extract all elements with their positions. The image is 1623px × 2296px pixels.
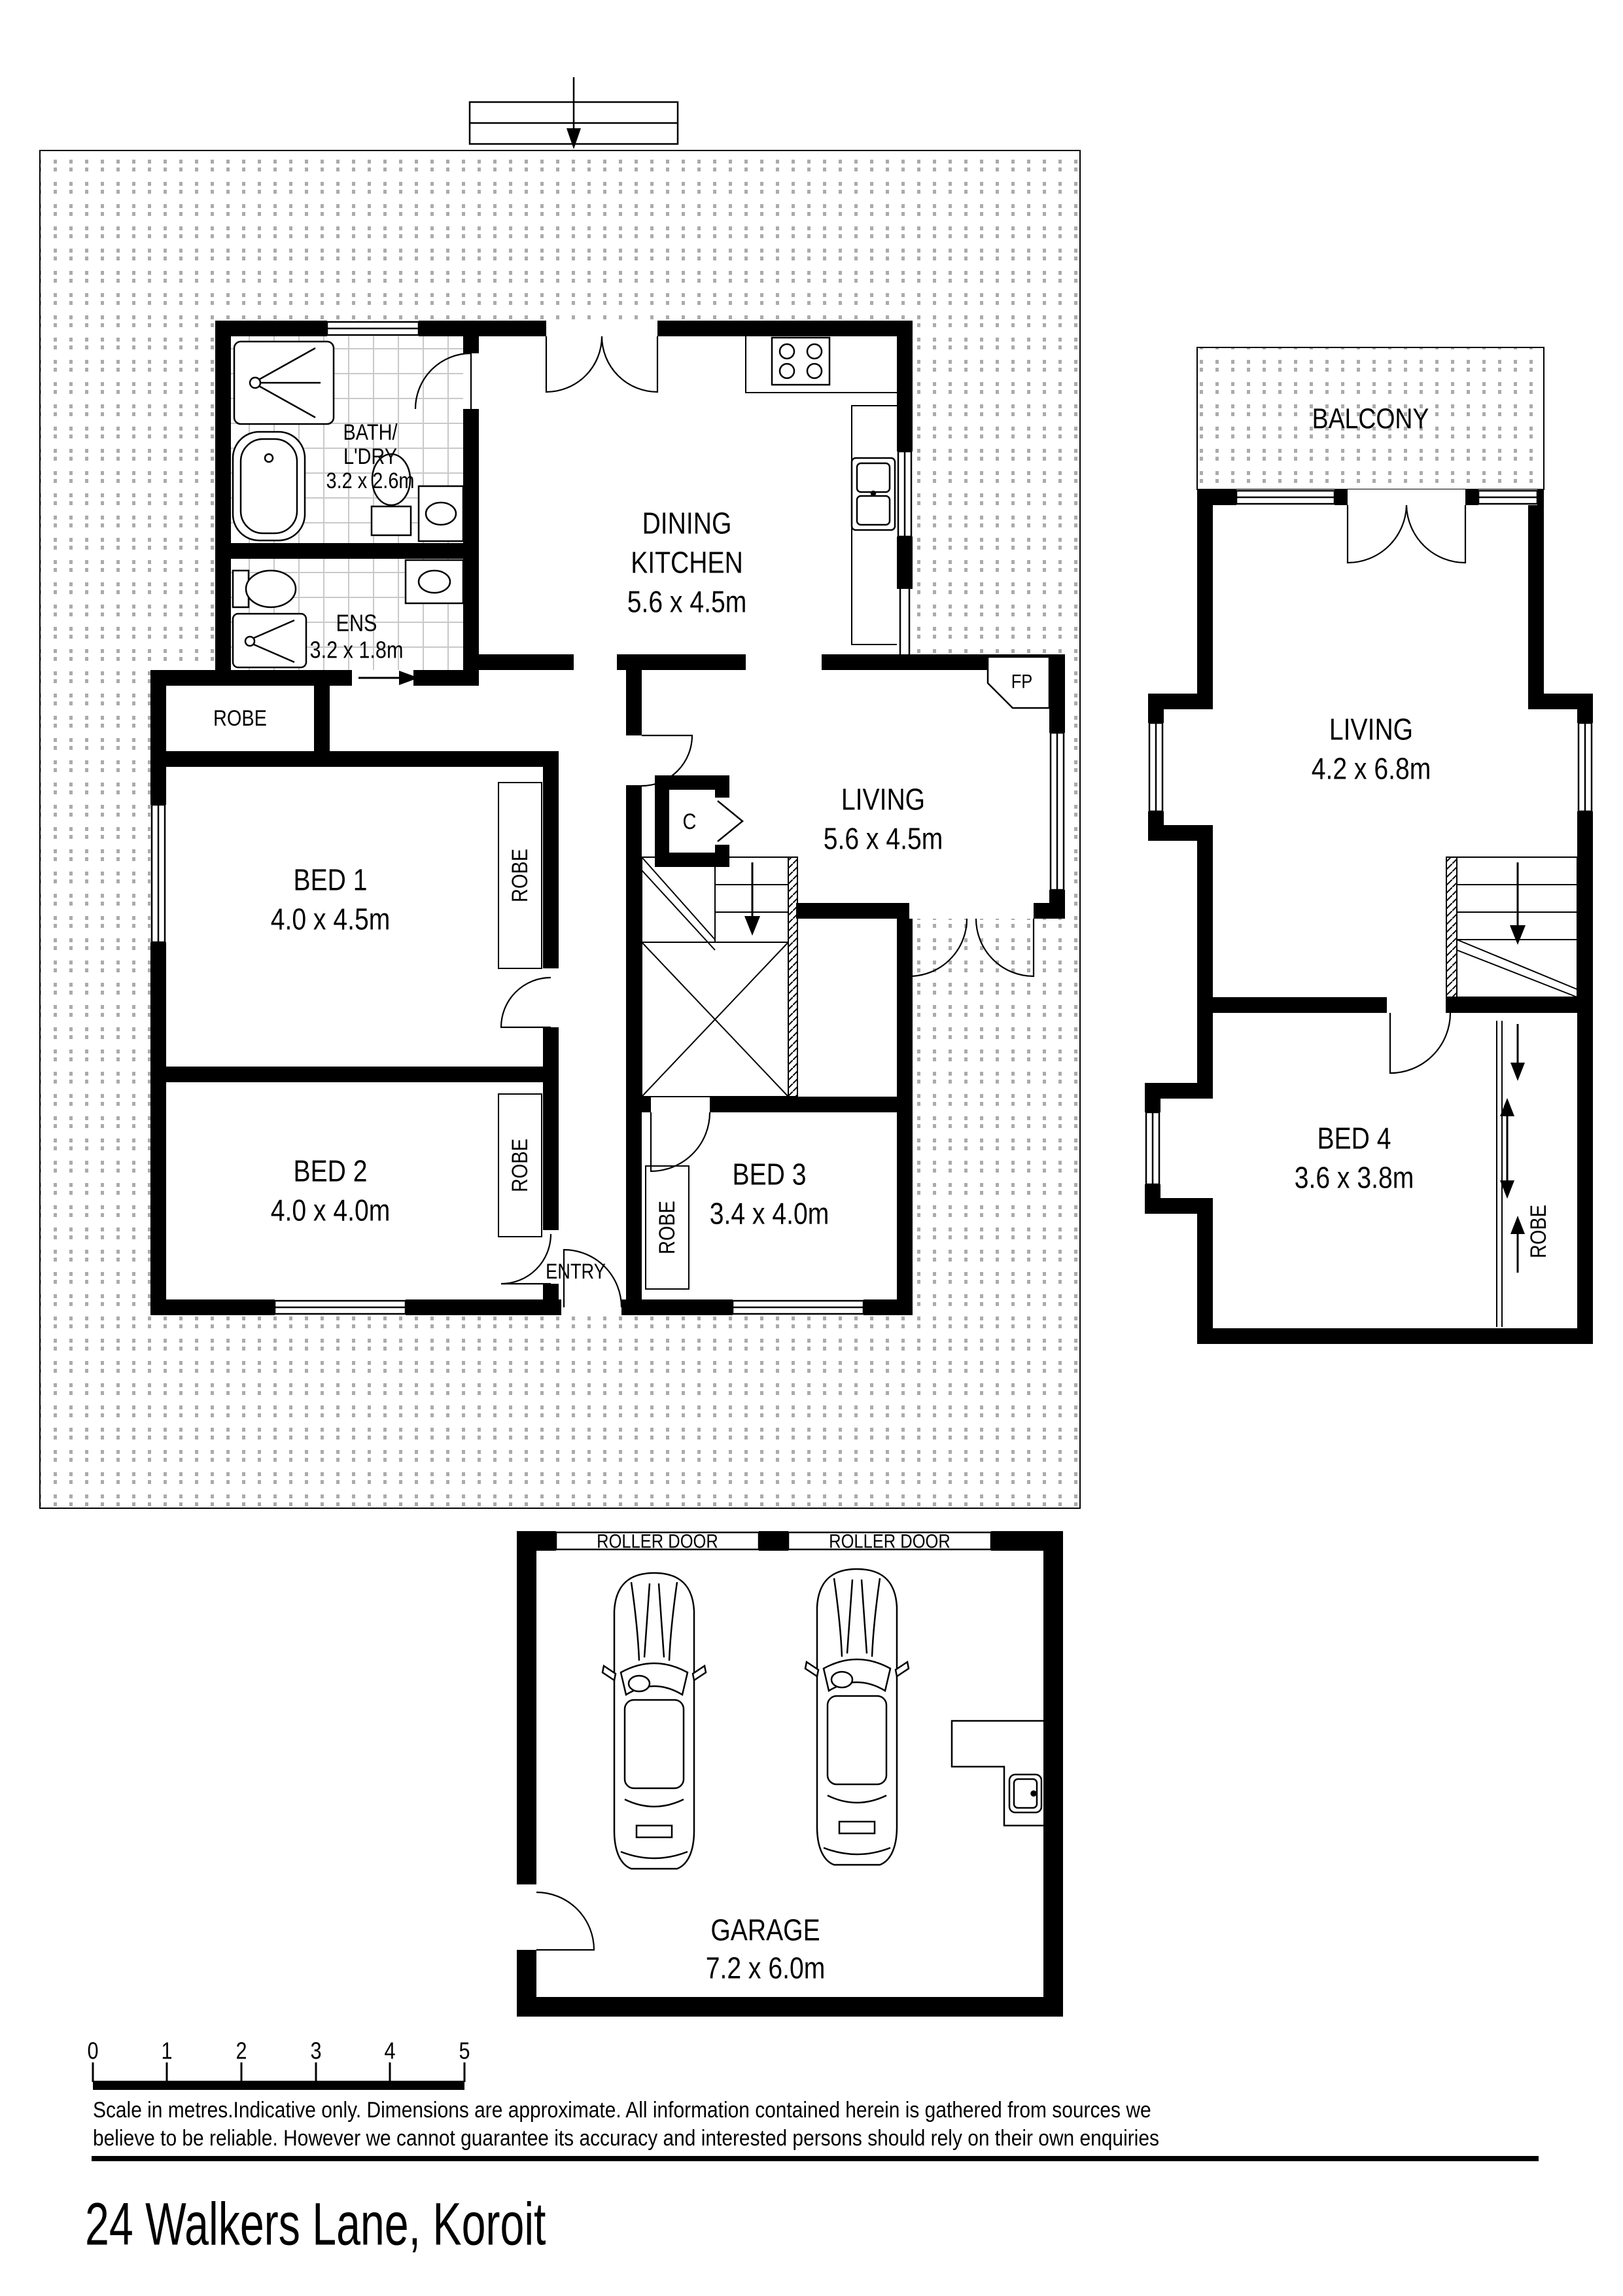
- entry-label: ENTRY: [546, 1258, 606, 1284]
- room-label-living-upper: LIVING: [1329, 711, 1413, 749]
- scale-tick-0: 0: [87, 2036, 98, 2066]
- robe-label-bed1: ROBE: [506, 849, 534, 902]
- ensuite-shower-icon: [233, 614, 306, 667]
- room-label-kitchen: KITCHEN: [631, 544, 743, 582]
- robe-label-bed2: ROBE: [506, 1139, 534, 1192]
- roller-door-label-2: ROLLER DOOR: [829, 1529, 951, 1554]
- page-title: 24 Walkers Lane, Koroit: [85, 2187, 546, 2263]
- bathtub-icon: [233, 432, 305, 540]
- scale-tick-2: 2: [236, 2036, 247, 2066]
- scale-tick-3: 3: [310, 2036, 321, 2066]
- car-icon: [805, 1569, 909, 1865]
- car-icon: [602, 1573, 706, 1869]
- room-dims-garage: 7.2 x 6.0m: [706, 1949, 826, 1987]
- roller-door-label-1: ROLLER DOOR: [597, 1529, 718, 1554]
- robe-label-bed4: ROBE: [1525, 1205, 1553, 1258]
- garage-bench: [952, 1721, 1043, 1826]
- room-dims-living-upper: 4.2 x 6.8m: [1312, 750, 1431, 788]
- ensuite-basin-icon: [406, 560, 463, 603]
- fireplace-label: FP: [1011, 669, 1033, 694]
- room-label-bed1: BED 1: [293, 861, 367, 899]
- vanity-basin-icon: [419, 486, 463, 541]
- robe-label-bed3: ROBE: [654, 1201, 682, 1254]
- room-dims-bath: 3.2 x 2.6m: [326, 467, 415, 495]
- scale-tick-1: 1: [161, 2036, 172, 2066]
- garage-entry-door: [536, 1892, 594, 1950]
- room-dims-living-ground: 5.6 x 4.5m: [824, 820, 943, 858]
- disclaimer-line-2: believe to be reliable. However we canno…: [93, 2125, 1159, 2153]
- room-label-living-ground: LIVING: [841, 781, 925, 819]
- room-dims-dining-kitchen: 5.6 x 4.5m: [627, 583, 747, 621]
- room-label-dining: DINING: [642, 504, 732, 542]
- disclaimer-line-1: Scale in metres.Indicative only. Dimensi…: [93, 2096, 1151, 2125]
- scale-tick-4: 4: [384, 2036, 395, 2066]
- robe-label-hall: ROBE: [213, 705, 267, 733]
- room-label-bed3: BED 3: [732, 1156, 806, 1193]
- floorplan-page: BATH/ L'DRY 3.2 x 2.6m ENS 3.2 x 1.8m DI…: [0, 0, 1623, 2296]
- footer-divider: [92, 2156, 1539, 2161]
- room-dims-bed3: 3.4 x 4.0m: [710, 1195, 829, 1233]
- porch-steps: [470, 77, 678, 149]
- room-label-bed2: BED 2: [293, 1152, 367, 1190]
- room-label-bed4: BED 4: [1317, 1120, 1391, 1157]
- balcony-label: BALCONY: [1312, 401, 1429, 437]
- room-dims-bed1: 4.0 x 4.5m: [271, 900, 391, 938]
- room-dims-bed4: 3.6 x 3.8m: [1295, 1159, 1414, 1197]
- ensuite-toilet-icon: [233, 571, 296, 607]
- cupboard-label: C: [683, 808, 697, 836]
- room-label-ensuite: ENS: [336, 609, 377, 638]
- scale-tick-5: 5: [459, 2036, 470, 2066]
- room-dims-bed2: 4.0 x 4.0m: [271, 1192, 391, 1229]
- shower-icon: [234, 342, 334, 424]
- room-label-garage: GARAGE: [710, 1911, 820, 1949]
- scale-bar: [93, 2062, 464, 2090]
- room-dims-ensuite: 3.2 x 1.8m: [310, 635, 404, 665]
